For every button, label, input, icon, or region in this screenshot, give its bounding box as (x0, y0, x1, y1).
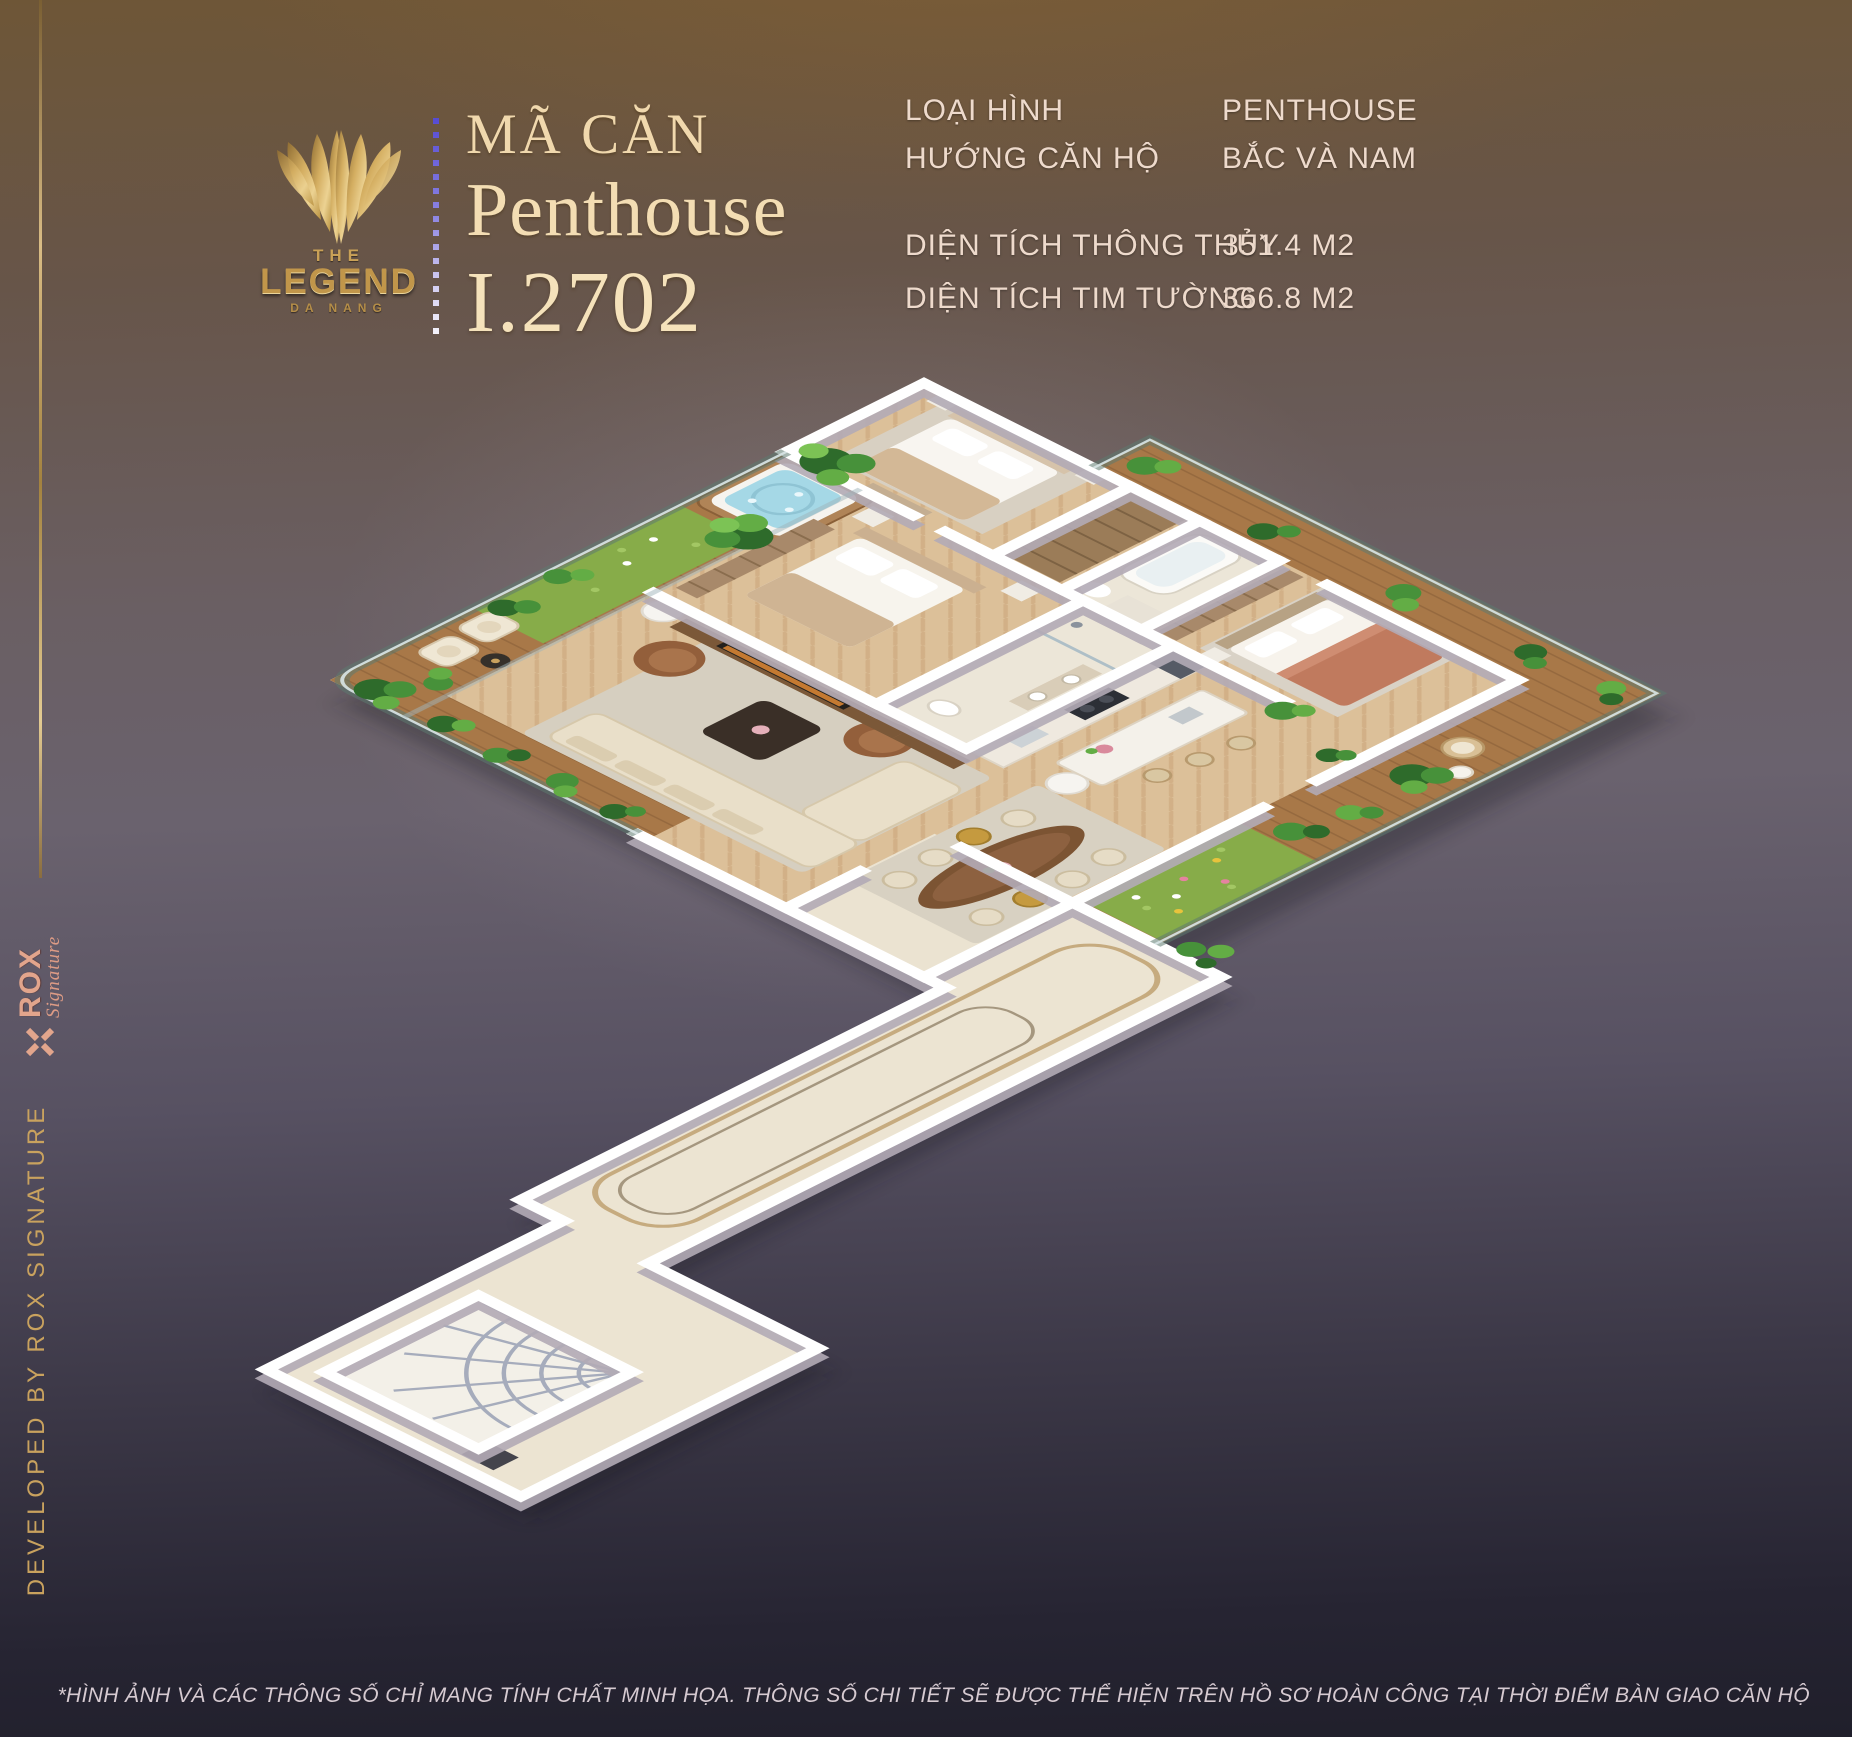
spec-value-gross-area: 366.8 M2 (1222, 282, 1642, 316)
spec-value-type: PENTHOUSE (1222, 94, 1642, 128)
spec-value-carpet-area: 351.4 M2 (1222, 229, 1642, 263)
floors-and-furniture (0, 354, 1852, 1516)
disclaimer-text: *HÌNH ẢNH VÀ CÁC THÔNG SỐ CHỈ MANG TÍNH … (57, 1684, 1810, 1708)
developer-credit: DEVELOPED BY ROX SIGNATURE (23, 1060, 53, 1640)
rox-signature-logo: ROX Signature (11, 905, 69, 1057)
gold-accent-bar (39, 0, 42, 878)
unit-code: I.2702 (466, 254, 787, 350)
unit-title-block: MÃ CĂN Penthouse I.2702 (466, 104, 787, 350)
legend-logo-icon (276, 116, 402, 248)
unit-label: MÃ CĂN (466, 104, 787, 166)
brand-name: LEGEND (256, 262, 422, 302)
spec-value-direction: BẮC VÀ NAM (1222, 142, 1642, 176)
unit-type: Penthouse (466, 166, 787, 254)
poster-canvas: THE LEGEND DA NANG MÃ CĂN Penthouse I.27… (0, 0, 1852, 1737)
brand-city: DA NANG (256, 301, 422, 315)
rox-logo-sub: Signature (45, 936, 63, 1018)
dotted-divider (433, 118, 439, 334)
rox-x-icon (25, 1027, 55, 1057)
rox-logo-text: ROX (17, 936, 45, 1018)
